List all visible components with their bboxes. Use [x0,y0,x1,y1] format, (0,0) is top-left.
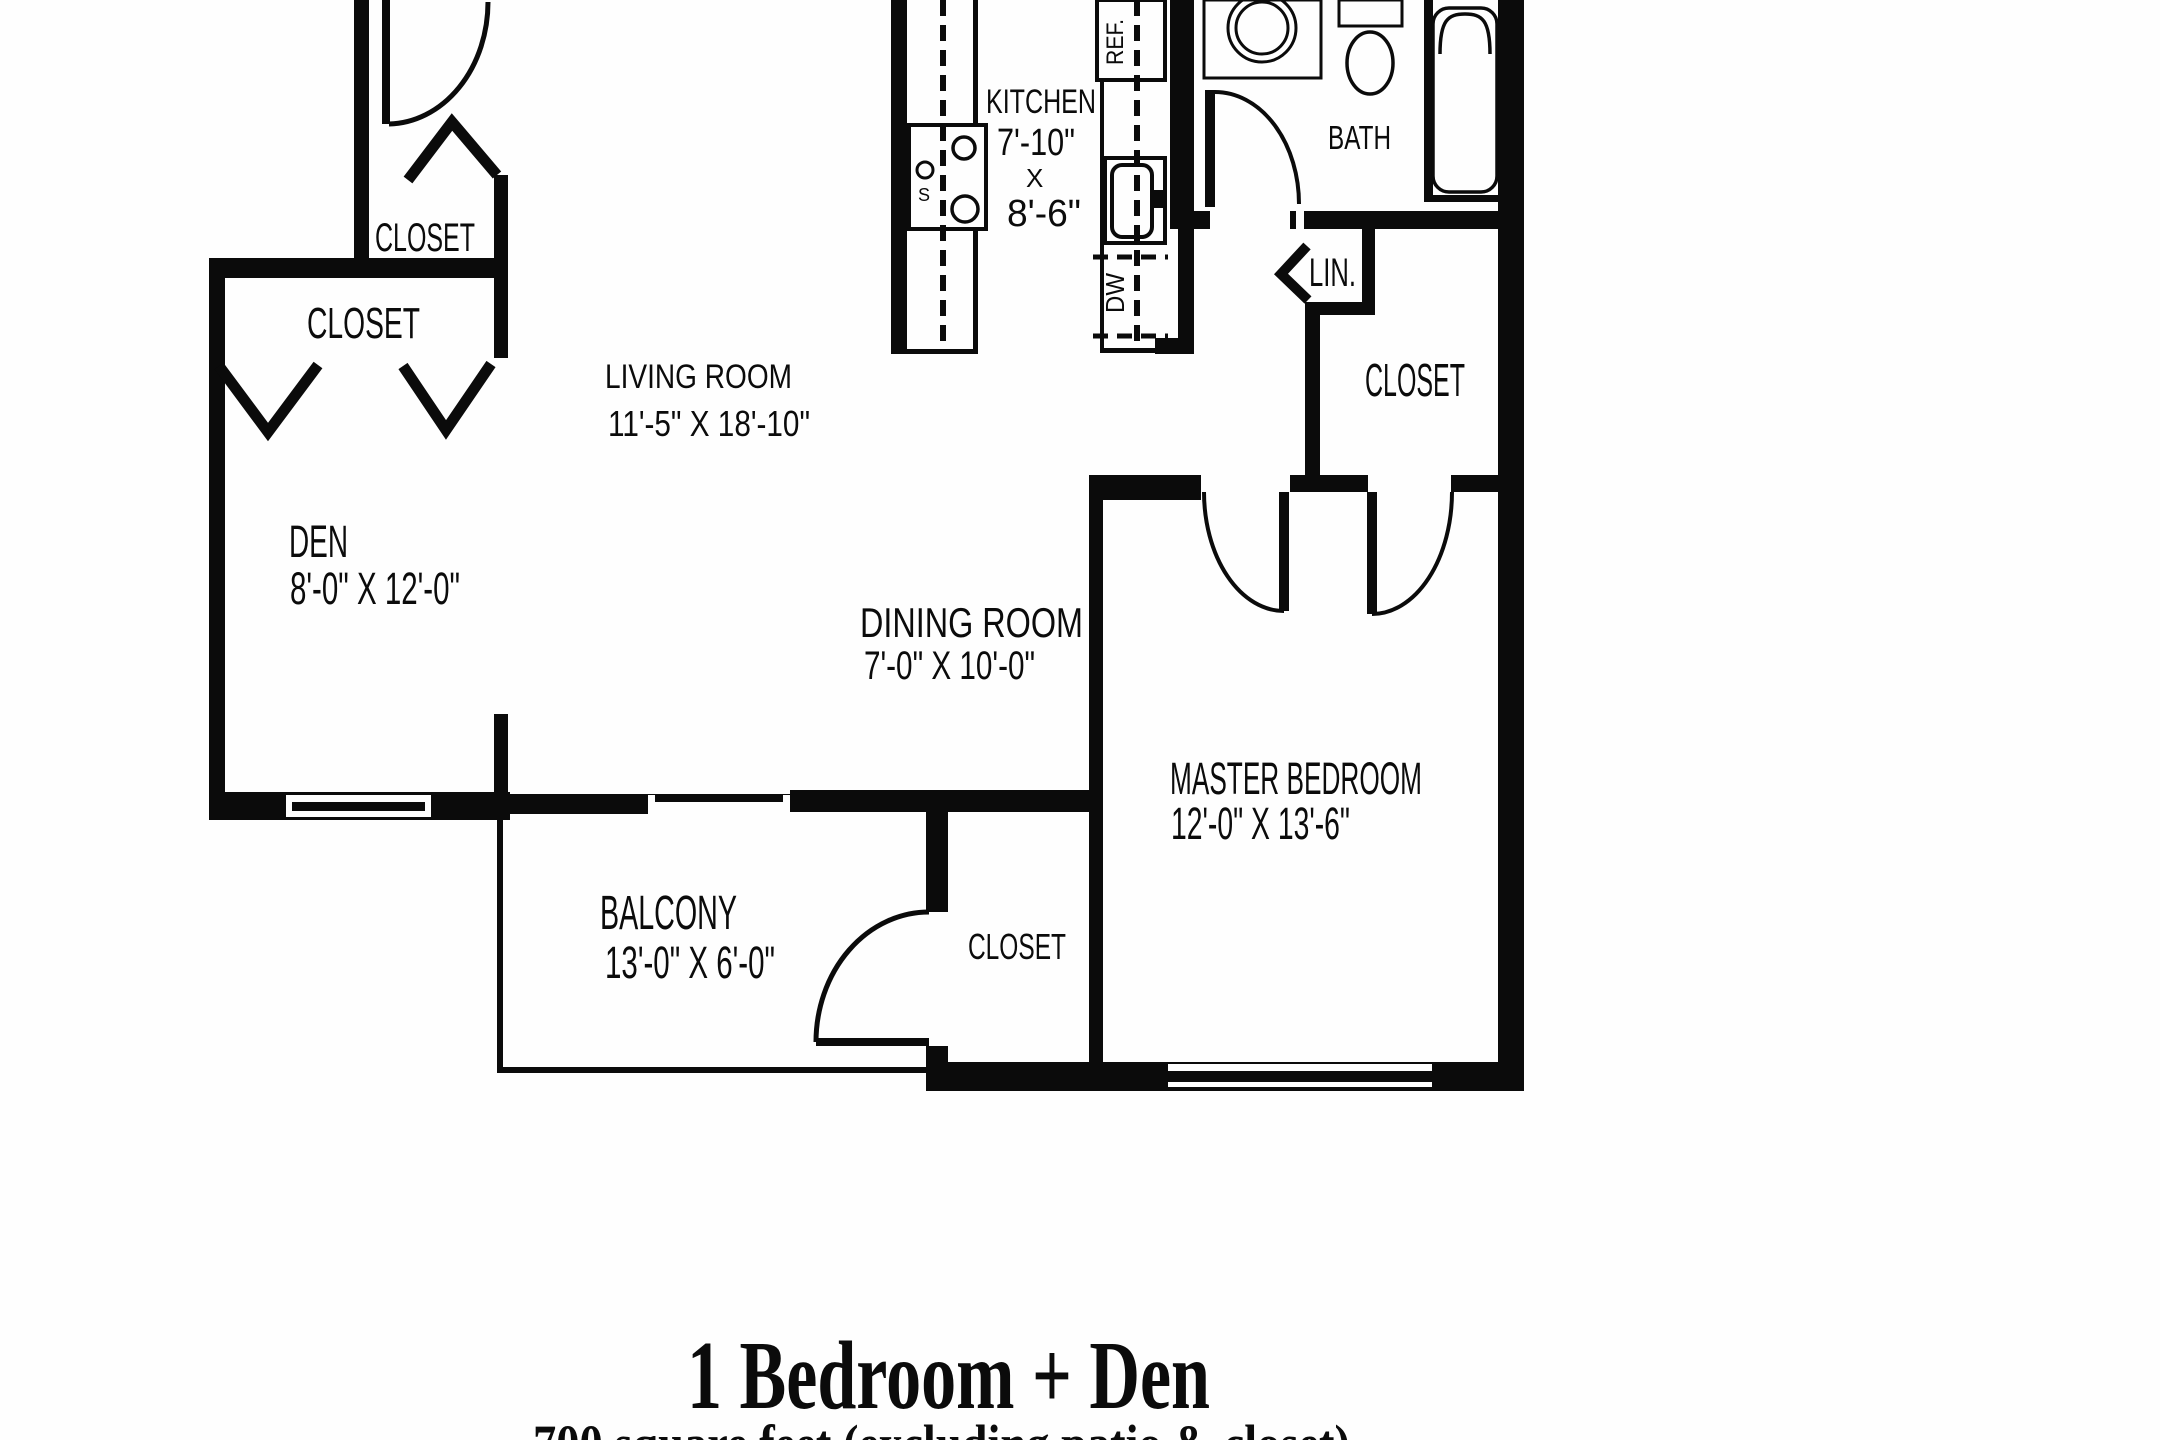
svg-text:7'-10": 7'-10" [997,122,1075,164]
svg-text:8'-0" X 12'-0": 8'-0" X 12'-0" [290,563,460,614]
svg-text:BATH: BATH [1328,119,1391,156]
svg-text:X: X [1026,163,1043,193]
svg-text:CLOSET: CLOSET [375,216,475,260]
svg-text:MASTER BEDROOM: MASTER BEDROOM [1170,753,1422,804]
svg-text:CLOSET: CLOSET [968,926,1066,967]
svg-text:S: S [918,185,930,205]
svg-text:DEN: DEN [289,516,348,567]
svg-text:CLOSET: CLOSET [1365,354,1465,406]
svg-text:LIN.: LIN. [1309,251,1356,295]
svg-text:13'-0" X 6'-0": 13'-0" X 6'-0" [605,937,775,988]
svg-text:8'-6": 8'-6" [1007,193,1081,235]
svg-text:KITCHEN: KITCHEN [986,83,1096,121]
svg-text:DINING ROOM: DINING ROOM [860,599,1083,646]
svg-text:11'-5" X 18'-10": 11'-5" X 18'-10" [608,403,810,444]
svg-text:LIVING ROOM: LIVING ROOM [605,358,792,396]
svg-text:7'-0" X 10'-0": 7'-0" X 10'-0" [864,644,1035,688]
svg-text:12'-0" X 13'-6": 12'-0" X 13'-6" [1171,798,1350,849]
svg-text:700 square feet (excluding pat: 700 square feet (excluding patio & close… [533,1414,1350,1440]
svg-text:REF.: REF. [1102,19,1129,65]
svg-text:DW: DW [1100,273,1130,313]
svg-text:CLOSET: CLOSET [307,299,420,348]
svg-text:BALCONY: BALCONY [600,887,737,940]
